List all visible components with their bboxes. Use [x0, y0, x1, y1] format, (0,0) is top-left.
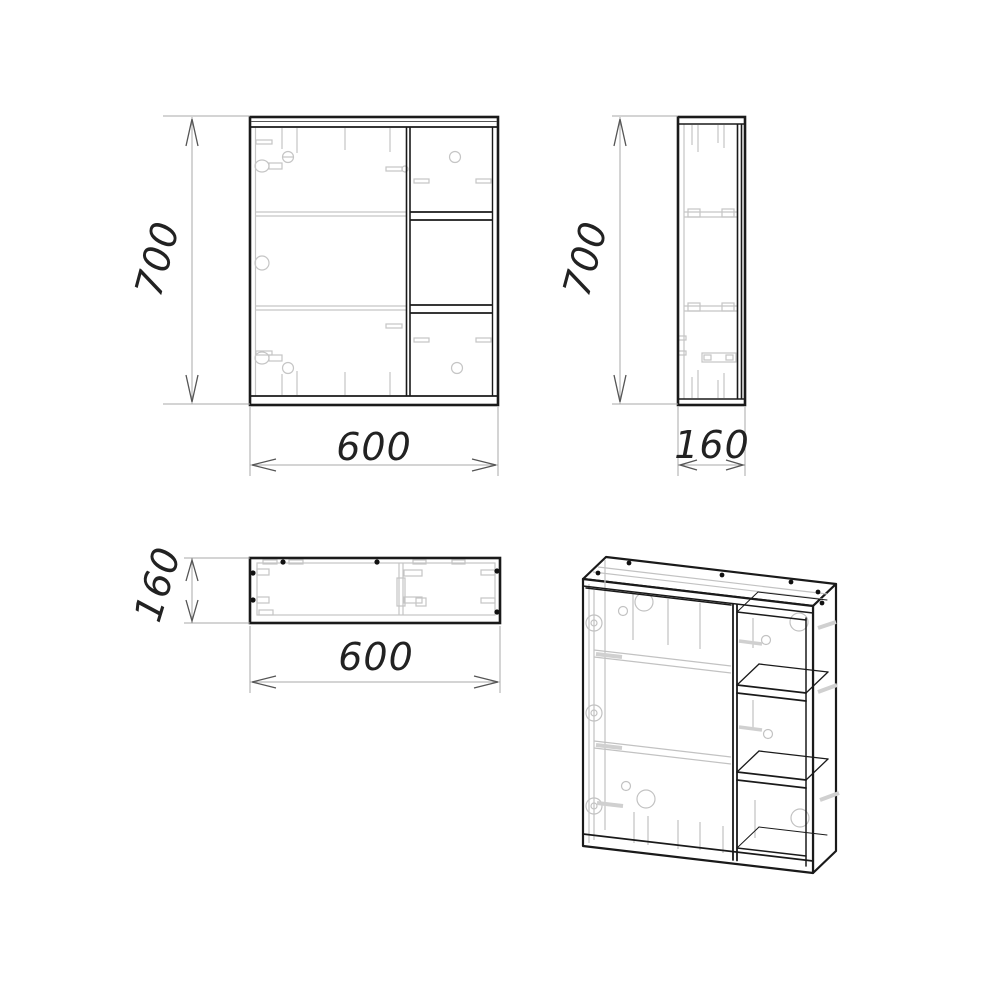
screw-dot-icon	[596, 571, 601, 576]
bottom-view: 160 600	[125, 542, 500, 693]
screw-dot-icon	[627, 561, 632, 566]
front-view: 700 600	[126, 116, 498, 476]
bottom-width-dimension: 600	[250, 626, 500, 693]
isometric-view	[583, 557, 839, 873]
side-depth-dimension: 160	[674, 407, 750, 476]
side-view: 700 160	[554, 116, 749, 476]
extension-lines	[612, 116, 678, 404]
front-height-label: 700	[126, 216, 188, 300]
bottom-width-label: 600	[338, 635, 414, 679]
screw-dot-icon	[789, 580, 794, 585]
cabinet-drawing-svg: 700 600	[0, 0, 1000, 1000]
screw-dot-icon	[820, 601, 825, 606]
side-height-dimension: 700	[554, 116, 678, 404]
side-height-label: 700	[554, 216, 616, 300]
front-width-label: 600	[336, 425, 412, 469]
iso-faces	[583, 557, 836, 873]
bottom-depth-label: 160	[125, 542, 189, 627]
bottom-body	[250, 558, 500, 623]
side-depth-label: 160	[674, 423, 750, 467]
front-width-dimension: 600	[250, 407, 498, 476]
screw-dot-icon	[816, 590, 821, 595]
front-body	[250, 117, 498, 405]
drawing-canvas: 700 600	[0, 0, 1000, 1000]
bottom-depth-dimension: 160	[125, 542, 250, 627]
screw-dot-icon	[280, 559, 285, 564]
front-height-dimension: 700	[126, 116, 250, 404]
screw-dot-icon	[720, 573, 725, 578]
screw-dot-icon	[374, 559, 379, 564]
